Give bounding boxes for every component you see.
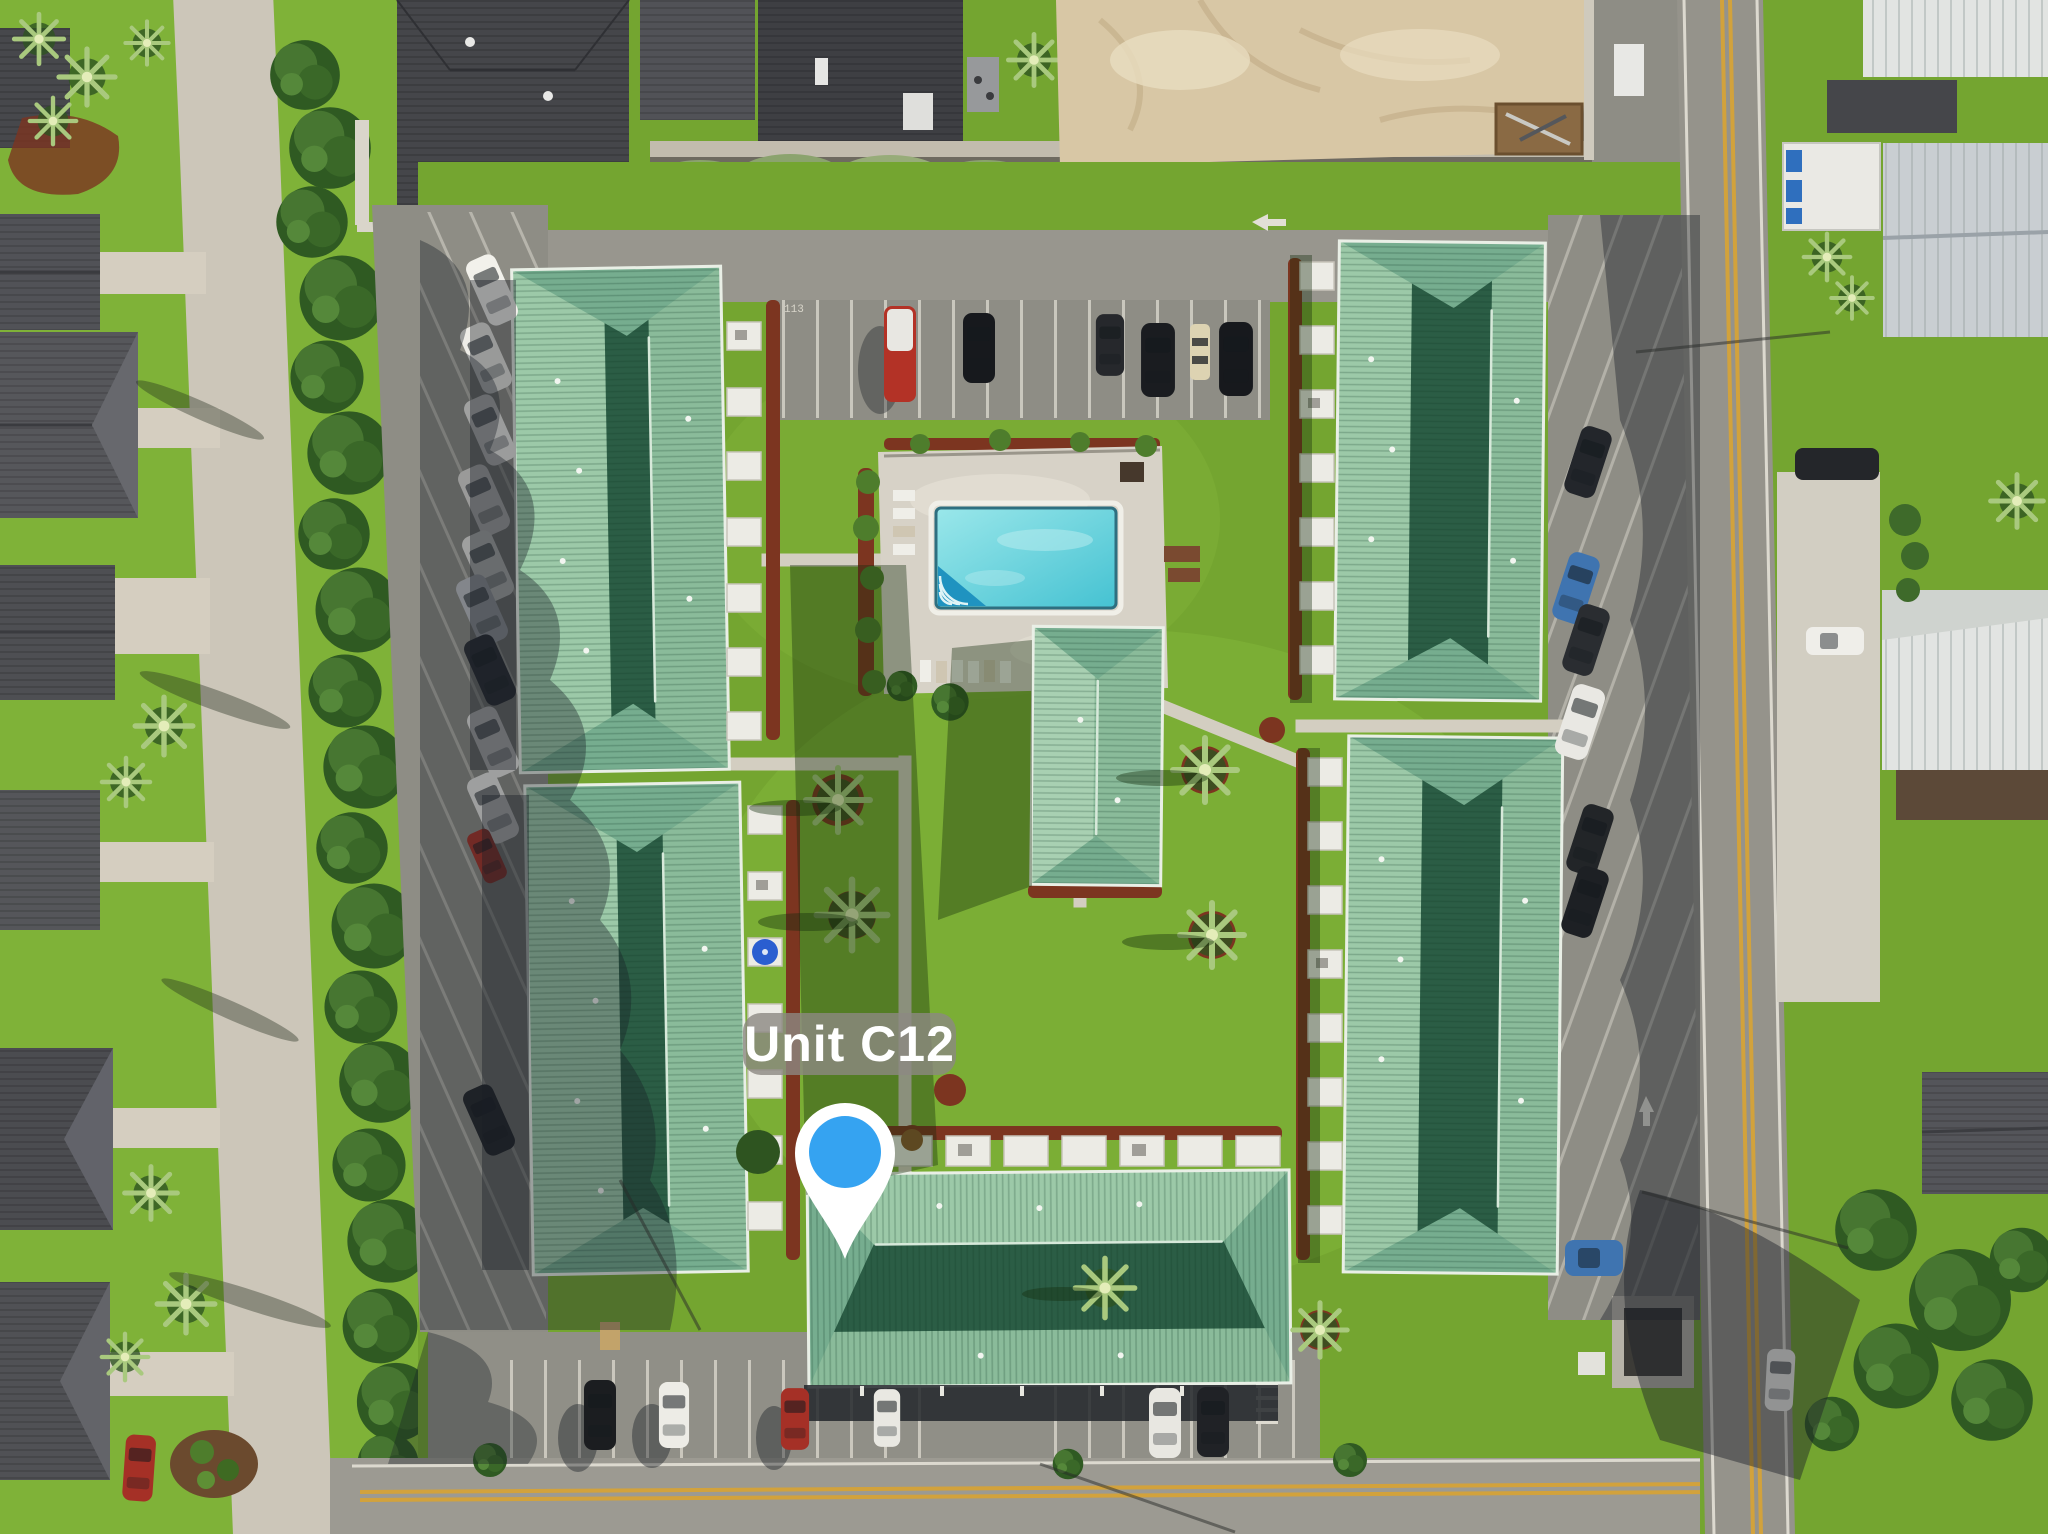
pin-marker bbox=[785, 1091, 905, 1271]
unit-label: Unit C12 bbox=[743, 1013, 956, 1075]
plant-island bbox=[170, 1430, 258, 1498]
gray-roof-house bbox=[1922, 1072, 2048, 1194]
concrete-pad bbox=[1777, 472, 1880, 1002]
clubhouse bbox=[1031, 626, 1164, 885]
pin-inner-dot bbox=[809, 1116, 881, 1188]
metal-roof-building bbox=[1883, 143, 2048, 337]
sand-lot bbox=[1056, 0, 1644, 166]
dark-roof-house bbox=[758, 0, 999, 148]
skid-steer bbox=[1614, 44, 1644, 96]
white-metal-house bbox=[1882, 590, 2048, 820]
debris-crate bbox=[1496, 104, 1582, 154]
grill bbox=[1120, 462, 1144, 482]
red-car bbox=[122, 1434, 157, 1502]
aerial-photo: 113 bbox=[0, 0, 2048, 1534]
stall-number-marking: 113 bbox=[784, 304, 804, 316]
building-c bbox=[1335, 241, 1546, 701]
building-d bbox=[1343, 736, 1563, 1274]
aerial-scene: 113 bbox=[0, 0, 2048, 1534]
south-road bbox=[330, 1458, 1720, 1534]
white-trailer bbox=[1783, 143, 1880, 230]
